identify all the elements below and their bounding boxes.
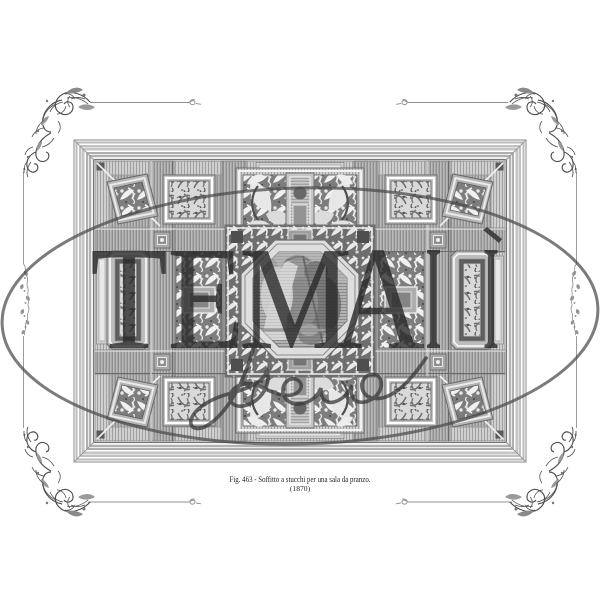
svg-text:Fig. 463 - Soffitto a stucchi: Fig. 463 - Soffitto a stucchi per una sa… bbox=[230, 474, 371, 484]
svg-text:(1870): (1870) bbox=[290, 484, 311, 493]
svg-text:A: A bbox=[333, 216, 425, 380]
svg-text:T: T bbox=[90, 216, 168, 380]
svg-text:E: E bbox=[167, 216, 245, 380]
